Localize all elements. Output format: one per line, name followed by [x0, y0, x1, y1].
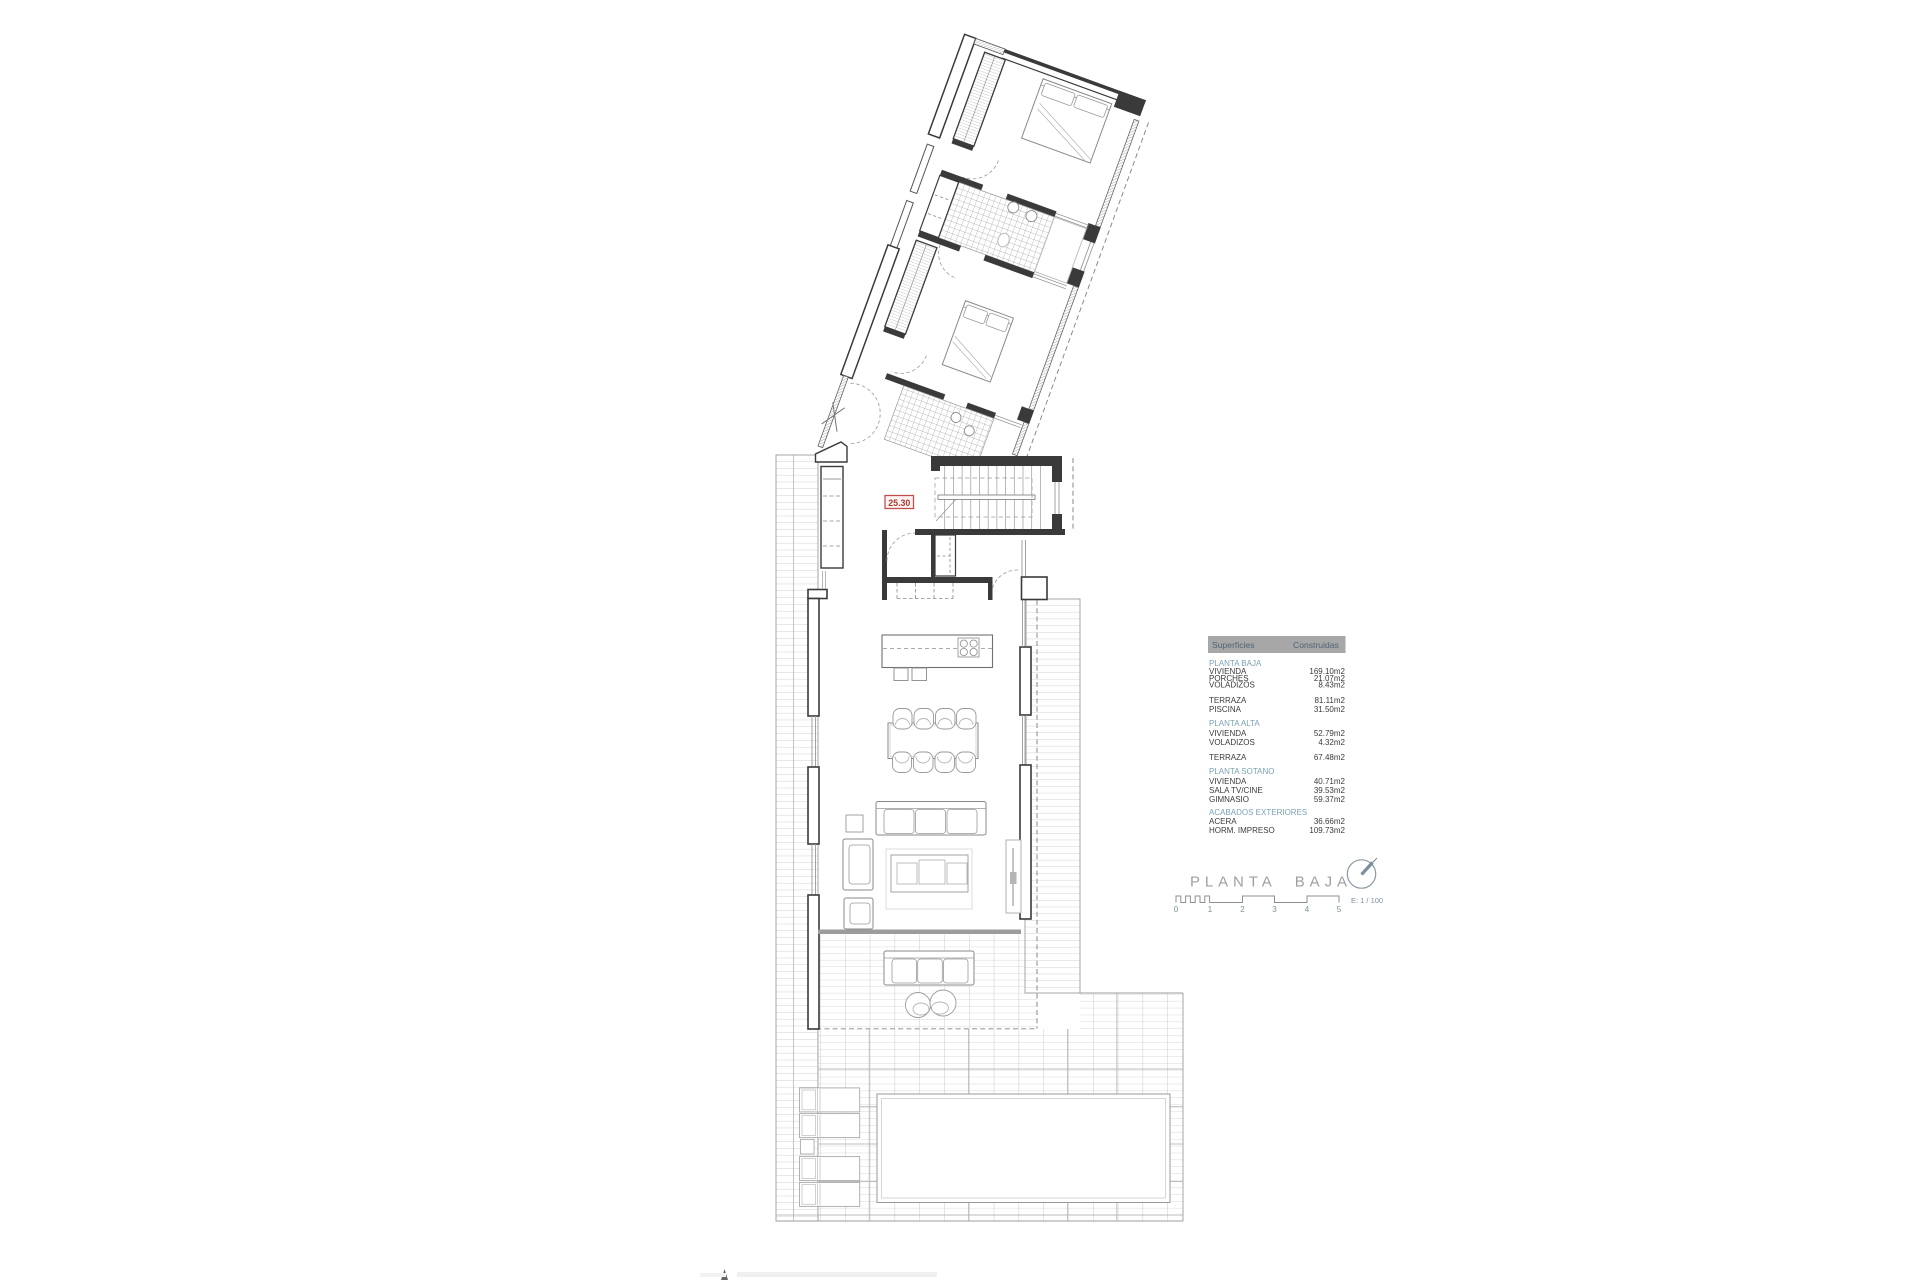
svg-text:Superficies: Superficies: [1212, 640, 1255, 650]
svg-text:ACABADOS EXTERIORES: ACABADOS EXTERIORES: [1209, 808, 1307, 817]
svg-text:5: 5: [1337, 905, 1342, 914]
svg-text:8.43m2: 8.43m2: [1318, 681, 1345, 690]
svg-text:3: 3: [1272, 905, 1277, 914]
svg-text:TERRAZA: TERRAZA: [1209, 753, 1247, 762]
svg-text:4.32m2: 4.32m2: [1318, 738, 1345, 747]
svg-text:E: 1 / 100: E: 1 / 100: [1351, 896, 1383, 905]
svg-text:52.79m2: 52.79m2: [1314, 729, 1346, 738]
svg-text:109.73m2: 109.73m2: [1309, 826, 1345, 835]
svg-text:PISCINA: PISCINA: [1209, 705, 1242, 714]
svg-text:VIVIENDA: VIVIENDA: [1209, 729, 1247, 738]
svg-text:4: 4: [1305, 905, 1310, 914]
svg-text:SALA TV/CINE: SALA TV/CINE: [1209, 786, 1263, 795]
svg-text:0: 0: [1174, 905, 1179, 914]
svg-text:PLANTA SOTANO: PLANTA SOTANO: [1209, 767, 1275, 776]
svg-text:81.11m2: 81.11m2: [1314, 696, 1345, 705]
svg-text:40.71m2: 40.71m2: [1314, 777, 1346, 786]
svg-text:39.53m2: 39.53m2: [1314, 786, 1346, 795]
svg-text:TERRAZA: TERRAZA: [1209, 696, 1247, 705]
svg-text:ACERA: ACERA: [1209, 817, 1237, 826]
svg-text:1: 1: [1208, 905, 1213, 914]
svg-text:59.37m2: 59.37m2: [1314, 795, 1346, 804]
svg-text:HORM. IMPRESO: HORM. IMPRESO: [1209, 826, 1275, 835]
svg-text:2: 2: [1240, 905, 1245, 914]
svg-text:PLANTA BAJA: PLANTA BAJA: [1190, 874, 1352, 891]
svg-text:25.30: 25.30: [888, 498, 910, 508]
svg-text:67.48m2: 67.48m2: [1314, 753, 1346, 762]
svg-text:GIMNASIO: GIMNASIO: [1209, 795, 1249, 804]
svg-text:VOLADIZOS: VOLADIZOS: [1209, 681, 1255, 690]
svg-text:VOLADIZOS: VOLADIZOS: [1209, 738, 1255, 747]
svg-text:PLANTA ALTA: PLANTA ALTA: [1209, 719, 1260, 728]
svg-text:31.50m2: 31.50m2: [1314, 705, 1346, 714]
svg-text:Construidas: Construidas: [1293, 640, 1339, 650]
svg-text:VIVIENDA: VIVIENDA: [1209, 777, 1247, 786]
svg-text:36.66m2: 36.66m2: [1314, 817, 1346, 826]
